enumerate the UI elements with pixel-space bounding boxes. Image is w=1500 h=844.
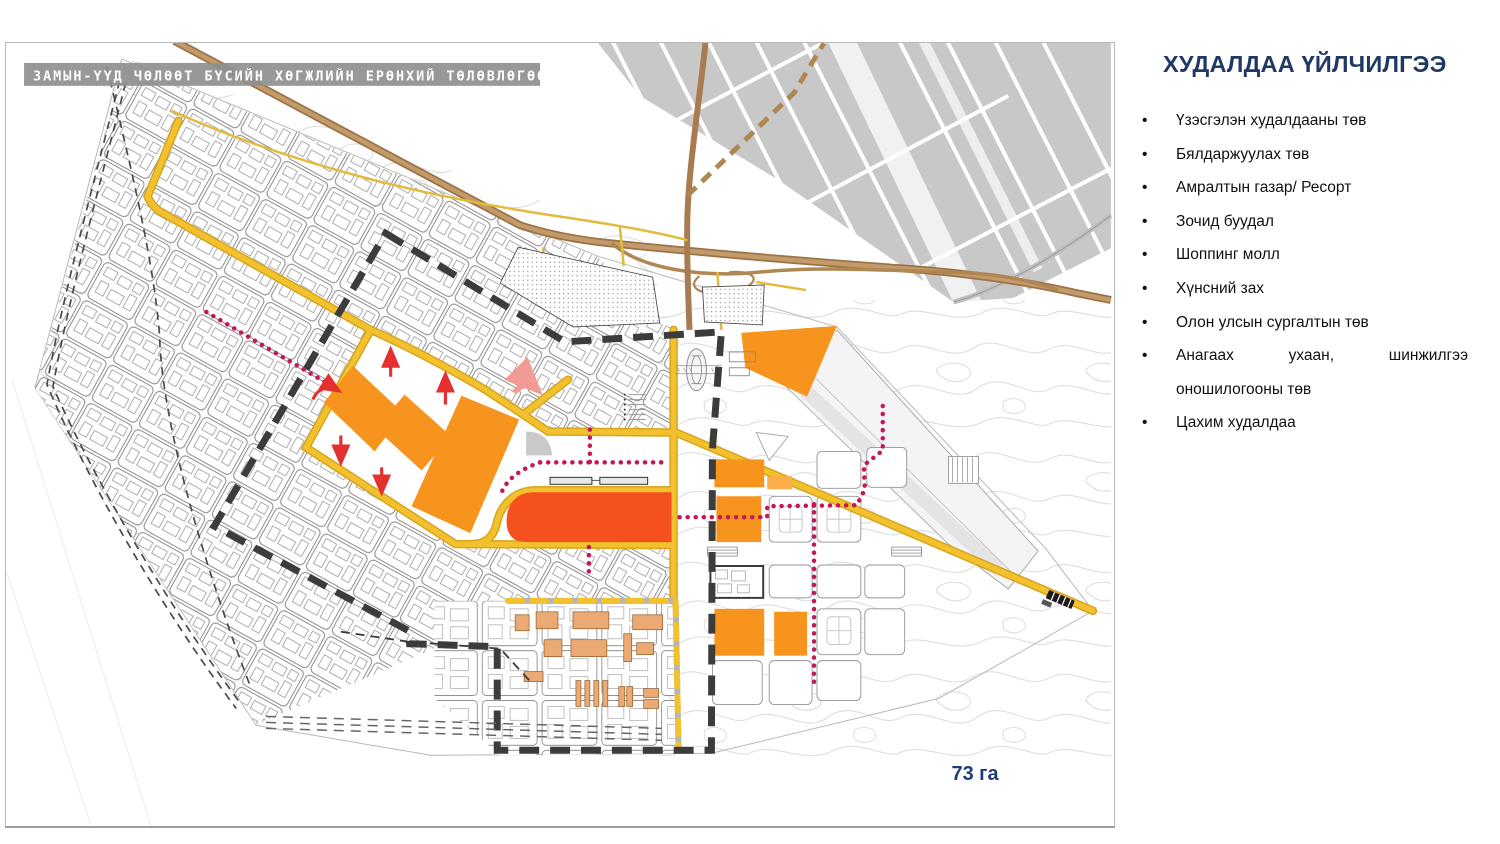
map-title: ЗАМЫН-ҮҮД ЧӨЛӨӨТ БҮСИЙН ХӨГЖЛИЙН ЕРӨНХИЙ… (33, 67, 547, 84)
masterplan-svg: ЗАМЫН-ҮҮД ЧӨЛӨӨТ БҮСИЙН ХӨГЖЛИЙН ЕРӨНХИЙ… (6, 43, 1114, 826)
list-item: Цахим худалдаа (1128, 406, 1490, 440)
list-item: Бялдаржуулах төв (1128, 138, 1490, 172)
list-item: Үзэсгэлэн худалдааны төв (1128, 104, 1490, 138)
stadium-icon (687, 349, 707, 391)
masterplan-map: ЗАМЫН-ҮҮД ЧӨЛӨӨТ БҮСИЙН ХӨГЖЛИЙН ЕРӨНХИЙ… (5, 42, 1115, 828)
list-item: Олон улсын сургалтын төв (1128, 306, 1490, 340)
list-item: Анагаах ухаан, шинжилгээ оношилогооны тө… (1128, 339, 1490, 406)
map-title-banner: ЗАМЫН-ҮҮД ЧӨЛӨӨТ БҮСИЙН ХӨГЖЛИЙН ЕРӨНХИЙ… (24, 63, 547, 86)
list-item: Шоппинг молл (1128, 238, 1490, 272)
area-label: 73 га (952, 763, 1000, 785)
slide: ЗАМЫН-ҮҮД ЧӨЛӨӨТ БҮСИЙН ХӨГЖЛИЙН ЕРӨНХИЙ… (0, 0, 1500, 844)
parking-lot-icon (949, 456, 979, 483)
content-panel: ХУДАЛДАА ҮЙЛЧИЛГЭЭ Үзэсгэлэн худалдааны … (1128, 51, 1490, 440)
list-item: Хүнсний зах (1128, 272, 1490, 306)
highlight-parcel (507, 492, 672, 542)
list-item: Зочид буудал (1128, 205, 1490, 239)
services-list: Үзэсгэлэн худалдааны төв Бялдаржуулах тө… (1128, 104, 1490, 440)
panel-title: ХУДАЛДАА ҮЙЛЧИЛГЭЭ (1163, 51, 1490, 78)
list-item: Амралтын газар/ Ресорт (1128, 171, 1490, 205)
